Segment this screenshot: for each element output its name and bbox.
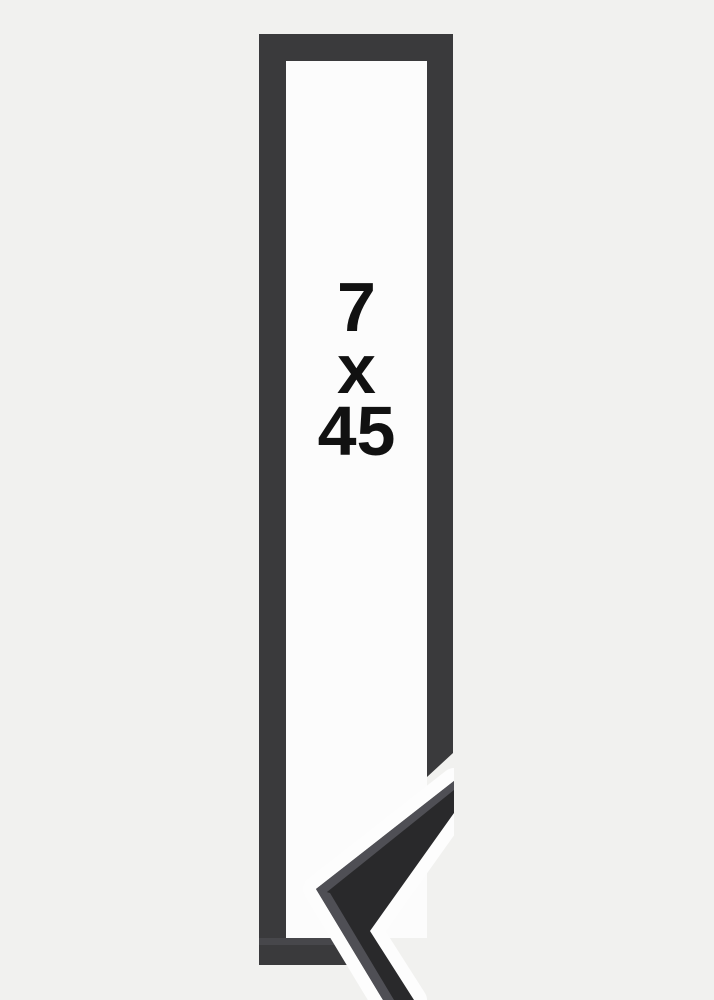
frame-graphic [0,0,714,1000]
background-mask [454,600,714,1000]
frame-left-bar [259,61,286,965]
size-width: 7 [256,276,457,338]
size-label: 7 x 45 [256,276,457,462]
size-separator: x [256,338,457,400]
frame-product-image: 7 x 45 [0,0,714,1000]
size-height: 45 [256,400,457,462]
frame-top-bar [259,34,453,61]
